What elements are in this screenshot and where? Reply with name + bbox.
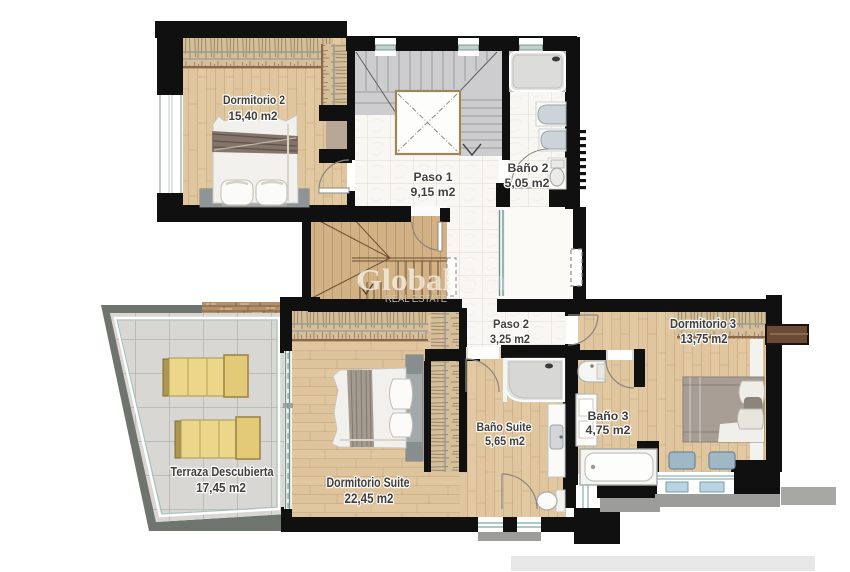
svg-text:Baño 3: Baño 3 bbox=[588, 409, 629, 423]
svg-text:15,40 m2: 15,40 m2 bbox=[229, 109, 278, 123]
svg-text:Paso 2: Paso 2 bbox=[493, 317, 529, 331]
svg-text:REAL ESTATE: REAL ESTATE bbox=[385, 293, 447, 305]
svg-text:Dormitorio 3: Dormitorio 3 bbox=[670, 317, 736, 331]
svg-text:3,25 m2: 3,25 m2 bbox=[490, 332, 530, 346]
svg-text:Dormitorio Suite: Dormitorio Suite bbox=[327, 475, 410, 490]
svg-text:22,45 m2: 22,45 m2 bbox=[345, 491, 394, 506]
svg-text:Dormitorio 2: Dormitorio 2 bbox=[223, 93, 285, 107]
svg-text:13,75 m2: 13,75 m2 bbox=[681, 332, 728, 346]
svg-text:Global Sta: Global Sta bbox=[356, 262, 507, 297]
svg-text:Baño Suite: Baño Suite bbox=[477, 420, 532, 434]
svg-text:Baño 2: Baño 2 bbox=[508, 161, 549, 175]
svg-text:5,05 m2: 5,05 m2 bbox=[505, 176, 550, 190]
svg-text:17,45 m2: 17,45 m2 bbox=[196, 480, 246, 495]
svg-text:4,75 m2: 4,75 m2 bbox=[586, 423, 631, 437]
svg-text:9,15 m2: 9,15 m2 bbox=[411, 185, 456, 199]
svg-text:Paso 1: Paso 1 bbox=[414, 170, 453, 184]
svg-text:5,65 m2: 5,65 m2 bbox=[485, 434, 525, 448]
svg-text:Terraza Descubierta: Terraza Descubierta bbox=[171, 464, 275, 479]
